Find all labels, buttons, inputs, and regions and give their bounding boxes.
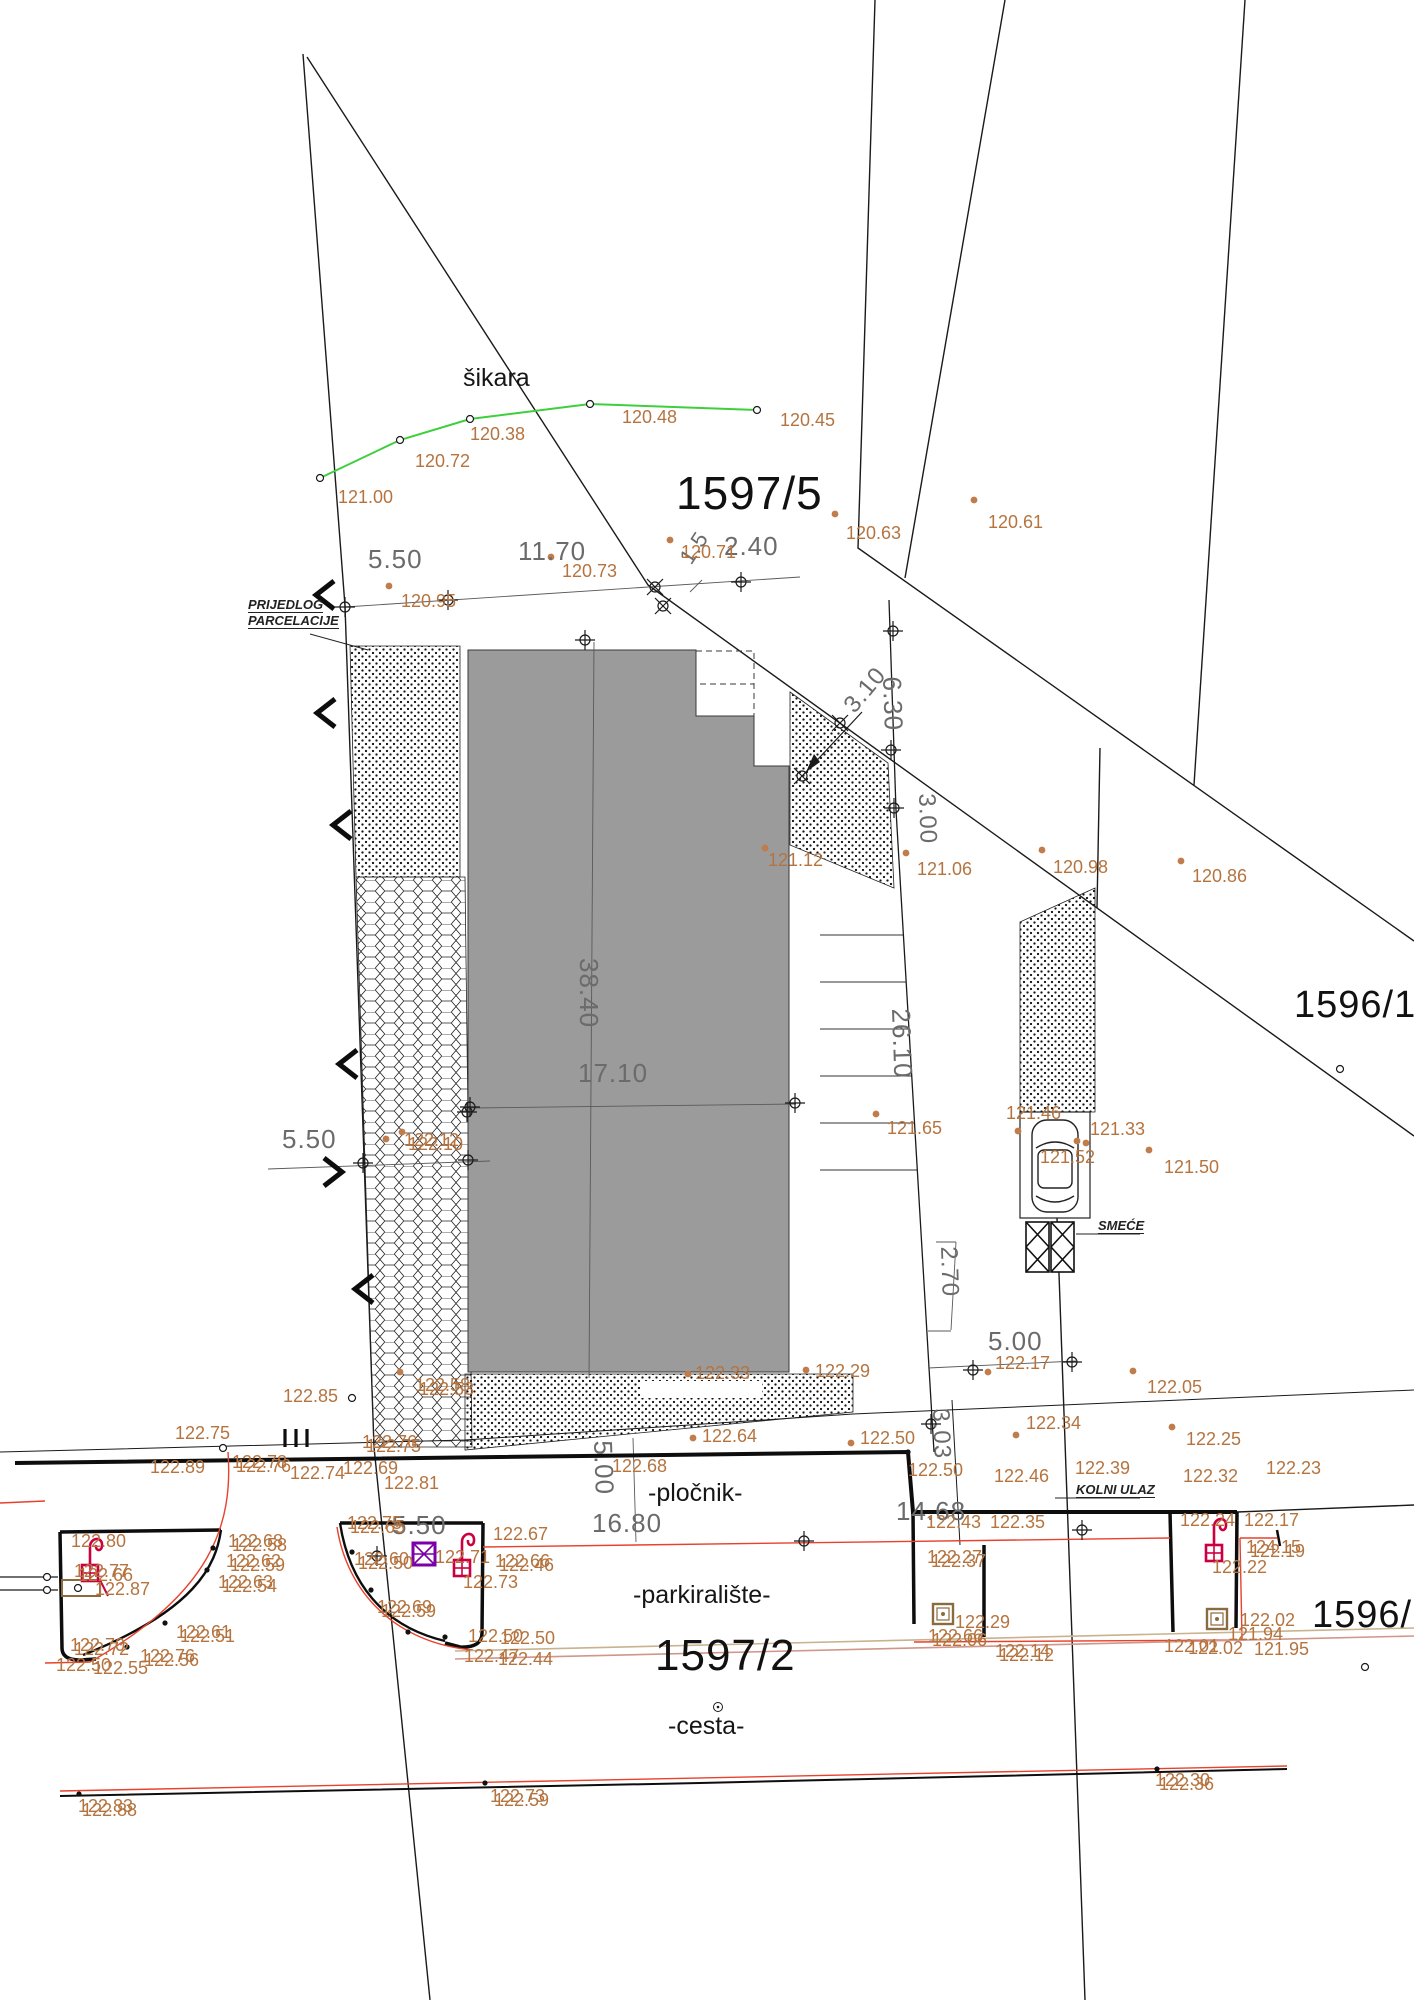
elevation-label: 122.17 [995, 1354, 1050, 1372]
elevation-label: 122.29 [815, 1362, 870, 1380]
annotation-label: PARCELACIJE [248, 614, 339, 629]
elevation-label: 122.05 [1147, 1378, 1202, 1396]
annotation-label: KOLNI ULAZ [1076, 1483, 1155, 1498]
elevation-label: 120.73 [562, 562, 617, 580]
elevation-label: 120.63 [846, 524, 901, 542]
elevation-label: 122.89 [150, 1458, 205, 1476]
parcel-number-label: 1596/1 [1294, 986, 1414, 1024]
elevation-label: 120.95 [401, 592, 456, 610]
elevation-label: 122.10 [408, 1135, 463, 1153]
elevation-label: 122.34 [1026, 1414, 1081, 1432]
elevation-label: 122.68 [612, 1457, 667, 1475]
elevation-label: 120.61 [988, 513, 1043, 531]
elevation-label: 120.98 [1053, 858, 1108, 876]
elevation-label: 120.48 [622, 408, 677, 426]
elevation-label: 122.87 [95, 1580, 150, 1598]
elevation-label: 120.38 [470, 425, 525, 443]
elevation-label: 122.50 [358, 1554, 413, 1572]
elevation-label: 122.50 [500, 1629, 555, 1647]
elevation-label: 122.50 [860, 1429, 915, 1447]
elevation-label: 122.24 [1180, 1511, 1235, 1529]
dimension-label: 26.10 [888, 1008, 916, 1079]
elevation-label: 121.65 [887, 1119, 942, 1137]
elevation-label: 121.52 [1040, 1148, 1095, 1166]
elevation-label: 122.43 [926, 1513, 981, 1531]
elevation-label: 122.37 [931, 1552, 986, 1570]
dimension-label: 5.50 [282, 1126, 337, 1152]
elevation-label: 122.55 [93, 1659, 148, 1677]
elevation-label: 121.46 [1006, 1104, 1061, 1122]
plan-labels-layer: 1597/51596/11597/21596/2šikara-pločnik--… [0, 0, 1414, 2000]
elevation-label: 122.25 [1186, 1430, 1241, 1448]
elevation-label: 122.75 [366, 1437, 421, 1455]
elevation-label: 120.72 [415, 452, 470, 470]
parcel-number-label: 1597/2 [655, 1634, 796, 1678]
annotation-label: PRIJEDLOG [248, 598, 323, 613]
elevation-label: 122.33 [695, 1364, 750, 1382]
elevation-label: 122.23 [1266, 1459, 1321, 1477]
elevation-label: 121.12 [768, 851, 823, 869]
dimension-label: 5.00 [988, 1328, 1043, 1354]
elevation-label: 121.06 [917, 860, 972, 878]
dimension-label: 3.00 [914, 793, 940, 845]
site-plan-canvas: 1597/51596/11597/21596/2šikara-pločnik--… [0, 0, 1414, 2000]
elevation-label: 122.51 [180, 1627, 235, 1645]
elevation-label: 122.74 [290, 1464, 345, 1482]
elevation-label: 122.76 [236, 1457, 291, 1475]
parcel-number-label: 1597/5 [676, 470, 823, 516]
elevation-label: 122.65 [350, 1518, 405, 1536]
elevation-label: 122.85 [283, 1387, 338, 1405]
annotation-label: SMEĆE [1098, 1219, 1144, 1234]
elevation-label: 122.02 [1240, 1611, 1295, 1629]
elevation-label: 122.59 [494, 1791, 549, 1809]
elevation-label: 121.33 [1090, 1120, 1145, 1138]
elevation-label: 120.86 [1192, 867, 1247, 885]
elevation-label: 122.81 [384, 1474, 439, 1492]
area-name-label: -cesta- [668, 1714, 744, 1739]
elevation-label: 122.88 [82, 1801, 137, 1819]
dimension-label: 5.50 [368, 546, 423, 572]
elevation-label: 122.64 [702, 1427, 757, 1445]
elevation-label: 120.71 [681, 543, 736, 561]
elevation-label: 122.71 [435, 1548, 490, 1566]
dimension-label: 2.70 [936, 1246, 962, 1298]
elevation-label: 122.44 [498, 1650, 553, 1668]
elevation-label: 122.73 [463, 1573, 518, 1591]
elevation-label: 122.06 [932, 1631, 987, 1649]
elevation-label: 121.95 [1254, 1640, 1309, 1658]
elevation-label: 122.35 [990, 1513, 1045, 1531]
elevation-label: 122.12 [999, 1646, 1054, 1664]
elevation-label: 122.67 [493, 1525, 548, 1543]
parcel-number-label: 1596/2 [1312, 1596, 1414, 1634]
elevation-label: 122.50 [908, 1461, 963, 1479]
elevation-label: 122.54 [222, 1577, 277, 1595]
area-name-label: -parkiralište- [633, 1583, 771, 1608]
area-name-label: šikara [463, 366, 530, 391]
area-name-label: -pločnik- [648, 1481, 742, 1506]
elevation-label: 122.75 [175, 1424, 230, 1442]
dimension-label: 17.10 [578, 1060, 648, 1086]
elevation-label: 122.56 [144, 1651, 199, 1669]
dimension-label: 6.30 [879, 676, 907, 731]
elevation-label: 122.80 [71, 1532, 126, 1550]
dimension-label: 3.03 [928, 1408, 954, 1460]
elevation-label: 122.36 [1159, 1775, 1214, 1793]
elevation-label: 122.46 [994, 1467, 1049, 1485]
elevation-label: 122.17 [1244, 1511, 1299, 1529]
elevation-label: 122.59 [381, 1602, 436, 1620]
dimension-label: 16.80 [592, 1510, 662, 1536]
elevation-label: 122.39 [1075, 1459, 1130, 1477]
elevation-label: 122.22 [1212, 1558, 1267, 1576]
elevation-label: 121.50 [1164, 1158, 1219, 1176]
elevation-label: 120.45 [780, 411, 835, 429]
elevation-label: 121.00 [338, 488, 393, 506]
elevation-label: 122.32 [1183, 1467, 1238, 1485]
dimension-label: 38.40 [576, 958, 602, 1028]
elevation-label: 122.53 [419, 1380, 474, 1398]
